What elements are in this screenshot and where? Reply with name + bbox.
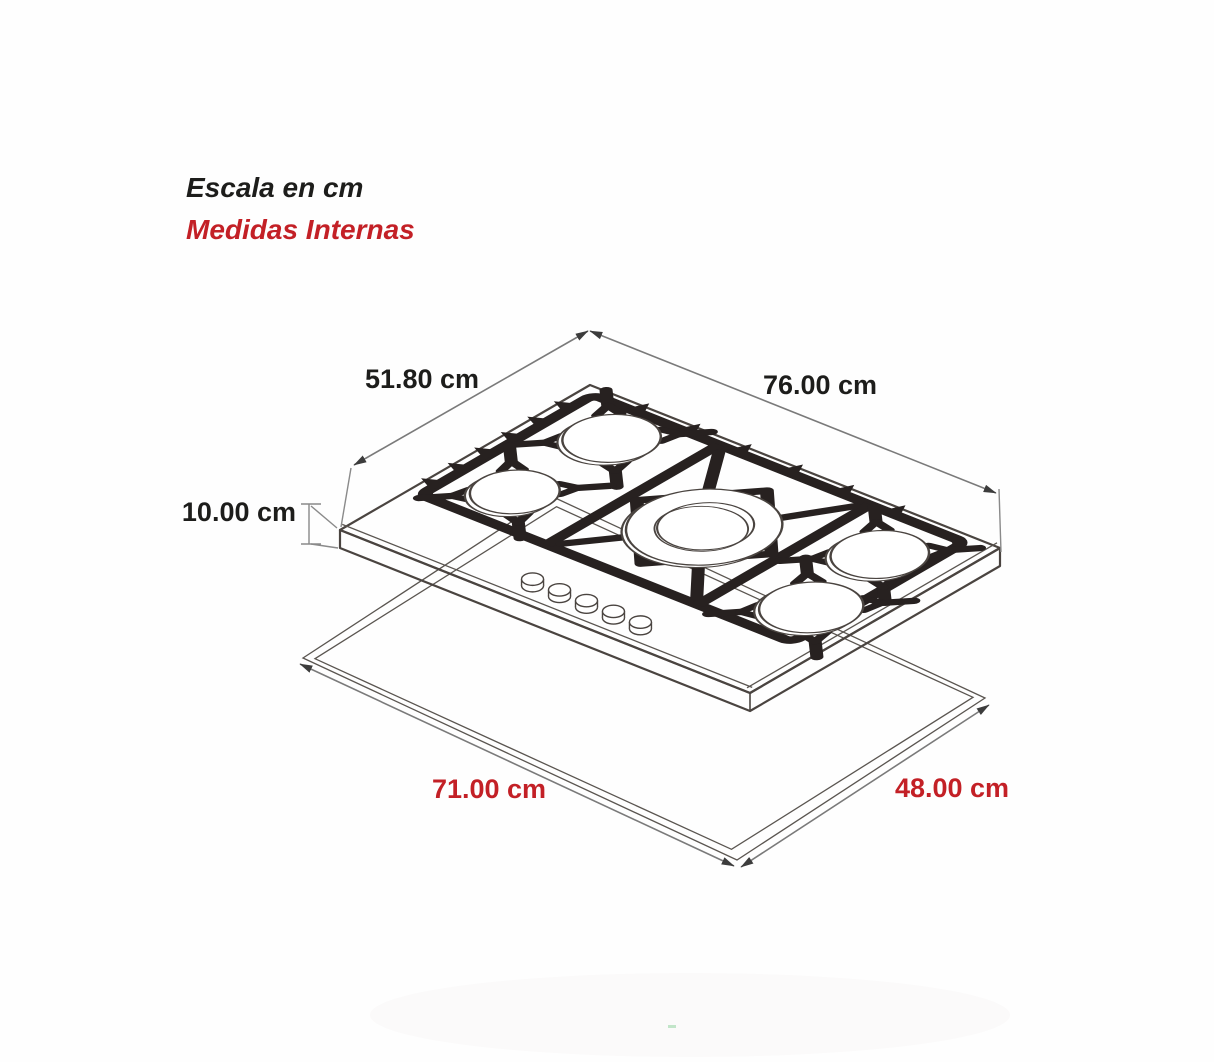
- burner-front-right: [733, 572, 885, 646]
- control-knob: [576, 594, 598, 613]
- cooktop-dimension-diagram: Escala en cm Medidas Internas 51.80 cm 7…: [0, 0, 1214, 1062]
- edge-height-leader-bottom: [311, 544, 338, 548]
- dimension-cutout-width: [300, 664, 734, 866]
- control-knob: [549, 584, 571, 603]
- label-top-depth: 51.80 cm: [365, 364, 479, 394]
- diagram-page: Escala en cm Medidas Internas 51.80 cm 7…: [0, 0, 1214, 1062]
- faint-watermark-blob: [370, 973, 1010, 1057]
- grate-foot: [519, 412, 554, 429]
- internal-measures-title: Medidas Internas: [186, 214, 415, 245]
- grate-foot: [466, 443, 501, 460]
- control-knob: [602, 605, 624, 624]
- label-cutout-depth: 48.00 cm: [895, 773, 1009, 803]
- label-edge-height: 10.00 cm: [182, 497, 296, 527]
- burner-grate: [399, 380, 1008, 657]
- control-knob: [522, 573, 544, 592]
- green-speck: [668, 1025, 676, 1028]
- label-cutout-width: 71.00 cm: [432, 774, 546, 804]
- grate-arm-fork: [873, 522, 893, 530]
- top-width-extension-line: [999, 489, 1001, 552]
- grate-foot: [546, 397, 581, 414]
- edge-height-leader-top: [311, 506, 337, 528]
- top-depth-extension-line: [341, 468, 351, 527]
- cutout-width-dim-line: [300, 664, 734, 866]
- label-top-width: 76.00 cm: [763, 370, 877, 400]
- grate-arm-fork: [508, 461, 527, 469]
- dimension-edge-height: [301, 504, 338, 548]
- grate-foot: [439, 458, 474, 475]
- grate-foot: [413, 473, 448, 490]
- grate-arm-fork: [804, 573, 824, 581]
- scale-title: Escala en cm: [186, 172, 363, 203]
- burner-center-large: [590, 474, 814, 583]
- control-knob: [629, 616, 651, 635]
